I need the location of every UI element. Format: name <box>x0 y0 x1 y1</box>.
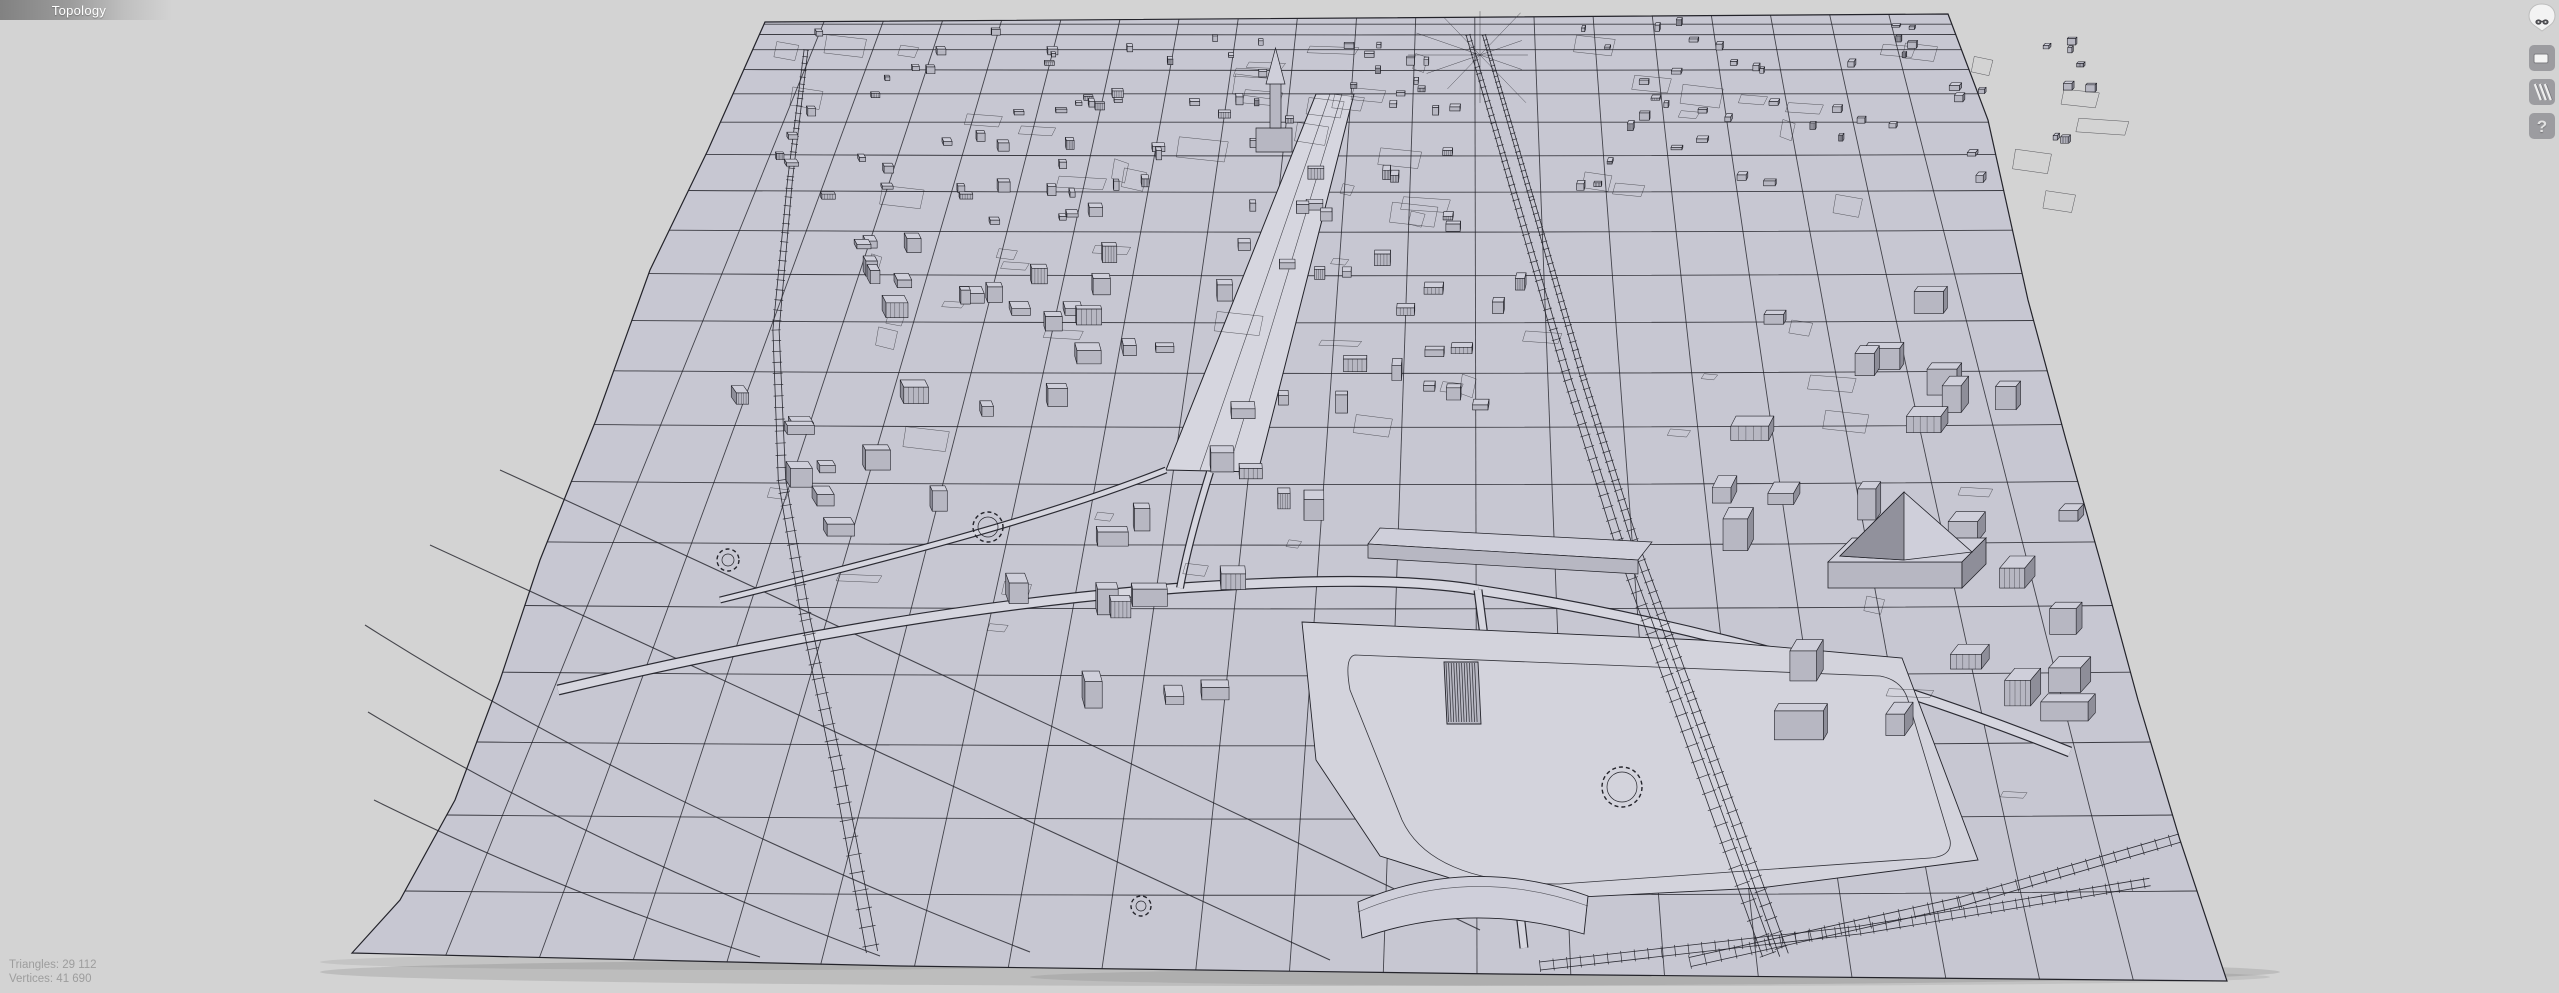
stats-triangles: Triangles: 29 112 <box>9 958 97 972</box>
hatch-icon-button[interactable] <box>2529 79 2555 105</box>
window-icon <box>2529 45 2555 71</box>
logo-icon[interactable] <box>2527 3 2557 35</box>
stats-vertices: Vertices: 41 690 <box>9 972 97 986</box>
scene-canvas <box>0 0 2559 993</box>
topology-tab[interactable]: Topology <box>0 0 172 20</box>
hatch-icon <box>2529 79 2555 105</box>
topology-tab-label: Topology <box>52 3 120 18</box>
toolbar: ? <box>2527 2 2557 147</box>
window-icon-button[interactable] <box>2529 45 2555 71</box>
stats-overlay: Triangles: 29 112 Vertices: 41 690 <box>9 958 97 986</box>
help-icon: ? <box>2537 118 2547 135</box>
help-icon-button[interactable]: ? <box>2529 113 2555 139</box>
viewport-3d[interactable] <box>0 0 2559 993</box>
